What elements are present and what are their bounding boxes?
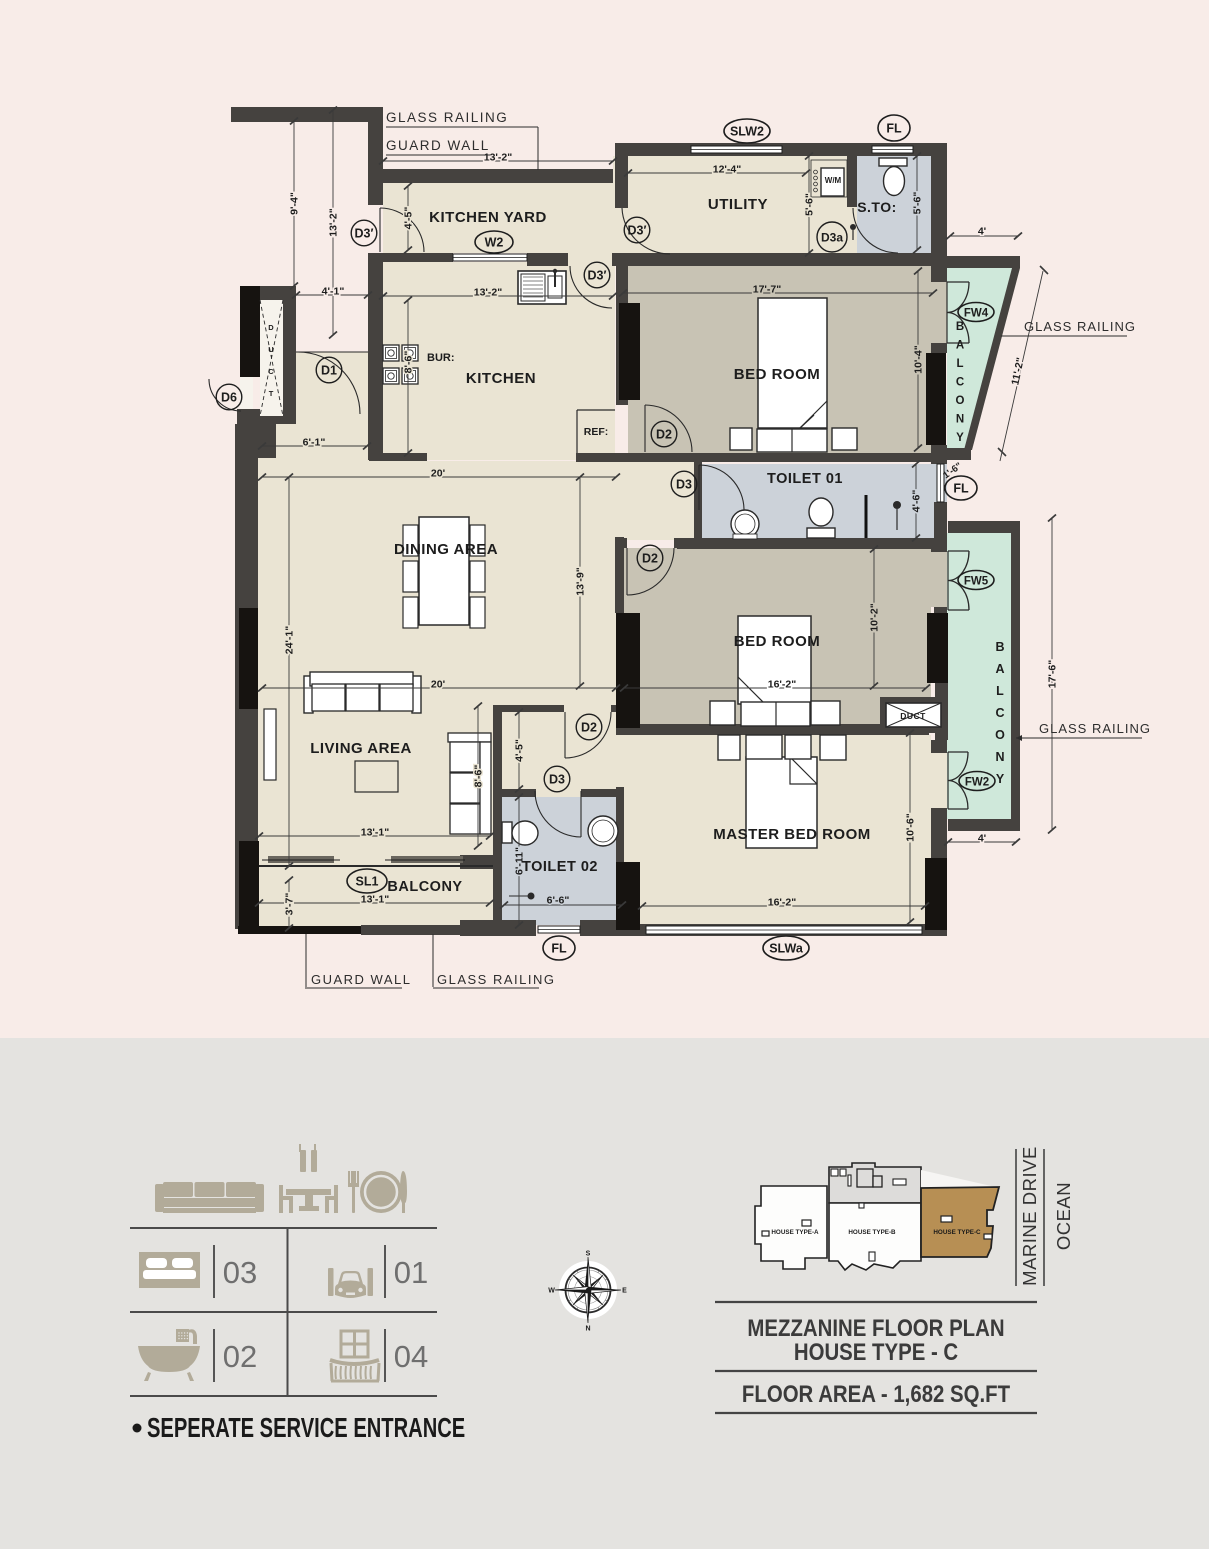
svg-text:O: O — [995, 728, 1005, 742]
svg-text:20': 20' — [431, 468, 445, 480]
svg-text:D6: D6 — [221, 391, 237, 405]
svg-text:B: B — [995, 640, 1004, 654]
svg-text:SLW2: SLW2 — [730, 124, 764, 138]
svg-text:5'-6": 5'-6" — [912, 192, 924, 215]
svg-text:3'-7": 3'-7" — [284, 893, 296, 916]
svg-text:D3′: D3′ — [628, 224, 647, 238]
svg-text:D: D — [268, 323, 274, 332]
svg-text:W: W — [548, 1288, 555, 1295]
svg-text:D2: D2 — [656, 428, 672, 442]
svg-text:E: E — [622, 1288, 627, 1295]
svg-text:10'-2": 10'-2" — [869, 603, 881, 632]
svg-text:13'-1": 13'-1" — [361, 827, 390, 839]
svg-text:4': 4' — [978, 226, 986, 238]
svg-text:HOUSE TYPE - C: HOUSE TYPE - C — [794, 1338, 958, 1365]
svg-text:6'-1": 6'-1" — [303, 437, 326, 449]
svg-text:GUARD WALL: GUARD WALL — [311, 972, 411, 987]
svg-text:GLASS RAILING: GLASS RAILING — [386, 110, 508, 125]
svg-text:L: L — [996, 684, 1004, 698]
svg-text:FW2: FW2 — [965, 776, 989, 788]
svg-text:KITCHEN YARD: KITCHEN YARD — [429, 209, 547, 226]
svg-text:T: T — [269, 389, 274, 398]
svg-text:MARINE DRIVE: MARINE DRIVE — [1019, 1146, 1040, 1286]
svg-text:DINING AREA: DINING AREA — [394, 541, 498, 558]
svg-text:B: B — [956, 321, 964, 333]
svg-text:4'-1": 4'-1" — [322, 286, 345, 298]
svg-text:20': 20' — [431, 679, 445, 691]
svg-text:BUR:: BUR: — [427, 352, 455, 364]
svg-text:FLOOR AREA - 1,682 SQ.FT: FLOOR AREA - 1,682 SQ.FT — [742, 1380, 1011, 1407]
svg-text:D2: D2 — [642, 552, 658, 566]
svg-text:HOUSE TYPE-C: HOUSE TYPE-C — [933, 1229, 981, 1236]
svg-text:BALCONY: BALCONY — [387, 879, 462, 895]
svg-text:13'-2": 13'-2" — [474, 287, 503, 299]
svg-text:TOILET 01: TOILET 01 — [767, 471, 843, 487]
svg-text:HOUSE TYPE-A: HOUSE TYPE-A — [771, 1229, 819, 1236]
svg-text:REF:: REF: — [584, 426, 609, 438]
svg-text:01: 01 — [394, 1255, 428, 1290]
svg-text:FW5: FW5 — [964, 575, 989, 587]
svg-text:N: N — [585, 1326, 590, 1333]
svg-text:4': 4' — [978, 833, 986, 845]
svg-text:D3′: D3′ — [588, 269, 607, 283]
svg-text:D2: D2 — [581, 721, 597, 735]
svg-text:04: 04 — [394, 1339, 428, 1374]
svg-text:GUARD WALL: GUARD WALL — [386, 138, 490, 153]
svg-text:D3: D3 — [676, 478, 692, 492]
svg-text:N: N — [956, 414, 964, 426]
svg-text:A: A — [995, 662, 1004, 676]
svg-text:S: S — [586, 1251, 591, 1258]
svg-text:D3a: D3a — [821, 231, 843, 245]
svg-text:C: C — [268, 367, 274, 376]
svg-text:TOILET 02: TOILET 02 — [522, 859, 598, 875]
svg-text:FL: FL — [953, 481, 969, 495]
svg-text:12'-4": 12'-4" — [713, 164, 742, 176]
svg-text:GLASS RAILING: GLASS RAILING — [437, 972, 555, 987]
svg-text:FL: FL — [886, 121, 902, 135]
svg-text:SLWa: SLWa — [769, 941, 804, 955]
svg-text:LIVING AREA: LIVING AREA — [310, 740, 412, 757]
svg-text:13'-9": 13'-9" — [575, 567, 587, 596]
svg-text:10'-6": 10'-6" — [905, 813, 917, 842]
svg-text:W/M: W/M — [825, 176, 842, 185]
svg-text:13'-2": 13'-2" — [484, 152, 513, 164]
svg-text:17'-6": 17'-6" — [1047, 660, 1059, 689]
svg-text:GLASS RAILING: GLASS RAILING — [1024, 319, 1136, 334]
svg-text:24'-1": 24'-1" — [284, 626, 296, 655]
svg-text:D3: D3 — [549, 773, 565, 787]
svg-text:03: 03 — [223, 1255, 257, 1290]
svg-text:5'-6": 5'-6" — [804, 193, 816, 216]
svg-text:8'-6": 8'-6" — [403, 351, 415, 374]
svg-text:L: L — [956, 358, 963, 370]
svg-text:N: N — [995, 750, 1004, 764]
svg-text:10'-4": 10'-4" — [913, 345, 925, 374]
svg-text:SL1: SL1 — [356, 874, 379, 888]
svg-text:FL: FL — [551, 941, 567, 955]
svg-text:Y: Y — [956, 432, 964, 444]
svg-text:16'-2": 16'-2" — [768, 897, 797, 909]
svg-text:02: 02 — [223, 1339, 257, 1374]
svg-text:BED ROOM: BED ROOM — [734, 366, 821, 383]
svg-text:KITCHEN: KITCHEN — [466, 370, 536, 387]
svg-text:6'-6": 6'-6" — [547, 895, 570, 907]
svg-text:MEZZANINE FLOOR PLAN: MEZZANINE FLOOR PLAN — [747, 1314, 1004, 1341]
svg-text:4'-5": 4'-5" — [514, 739, 526, 762]
svg-text:13'-1": 13'-1" — [361, 894, 390, 906]
svg-text:A: A — [956, 340, 964, 352]
svg-text:OCEAN: OCEAN — [1053, 1182, 1074, 1250]
svg-text:Y: Y — [996, 772, 1005, 786]
svg-text:SEPERATE SERVICE ENTRANCE: SEPERATE SERVICE ENTRANCE — [147, 1413, 465, 1444]
svg-text:BED ROOM: BED ROOM — [734, 633, 821, 650]
svg-text:FW4: FW4 — [964, 307, 989, 319]
svg-text:U: U — [268, 345, 273, 354]
svg-text:S.TO:: S.TO: — [857, 199, 897, 215]
svg-text:13'-2": 13'-2" — [328, 208, 340, 237]
svg-text:9'-4": 9'-4" — [289, 192, 301, 215]
svg-text:O: O — [956, 395, 965, 407]
svg-text:C: C — [995, 706, 1004, 720]
svg-text:D1: D1 — [321, 364, 337, 378]
svg-text:4'-6": 4'-6" — [911, 490, 923, 513]
svg-text:W2: W2 — [485, 235, 504, 249]
svg-text:HOUSE TYPE-B: HOUSE TYPE-B — [848, 1229, 896, 1236]
svg-text:UTILITY: UTILITY — [708, 196, 768, 213]
svg-text:4'-5": 4'-5" — [403, 207, 415, 230]
svg-text:C: C — [956, 377, 964, 389]
svg-text:D3′: D3′ — [355, 227, 374, 241]
svg-text:DUCT: DUCT — [900, 711, 926, 721]
svg-text:GLASS RAILING: GLASS RAILING — [1039, 721, 1151, 736]
svg-text:MASTER BED ROOM: MASTER BED ROOM — [713, 826, 871, 843]
svg-text:17'-7": 17'-7" — [753, 284, 782, 296]
svg-text:16'-2": 16'-2" — [768, 679, 797, 691]
svg-text:8'-6": 8'-6" — [473, 765, 485, 788]
